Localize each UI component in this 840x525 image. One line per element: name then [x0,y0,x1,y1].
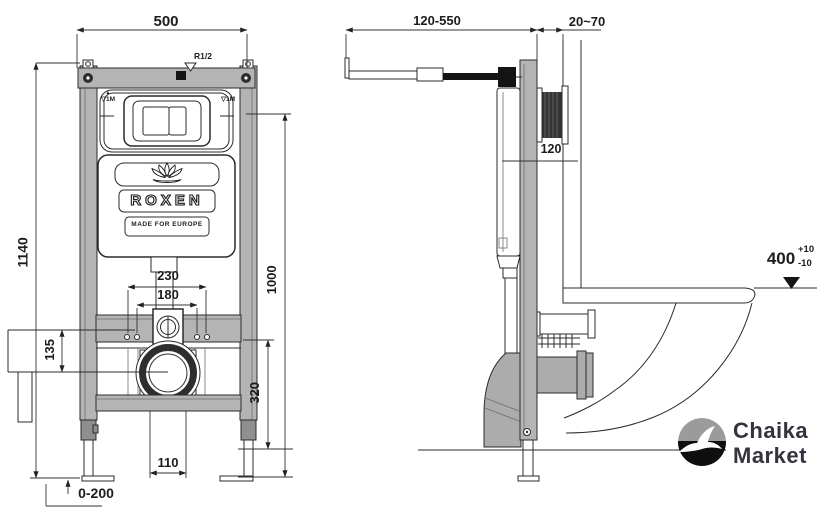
dim-outlet-offset: 110 [146,456,190,470]
flush-button-large [143,107,169,135]
label-water-inlet: R1/2 [186,52,220,61]
flush-pipe-side [505,278,517,353]
fixing-studs [538,334,580,348]
level-triangle-mark [783,277,800,289]
frame-left-column [80,66,97,420]
dim-fixing-outer: 230 [148,269,188,283]
side-view-drawing [345,40,817,481]
store-logo [676,418,728,467]
front-view-drawing [8,60,257,481]
installation-drawing: 500 1140 230 180 135 1000 320 110 0-200 … [0,0,840,525]
dim-bowl-height-minus: -10 [798,259,824,269]
wall-arm-plate [18,372,32,422]
adjustable-leg-right [244,440,253,477]
technical-drawing [0,0,840,525]
level-mark-right: ▽1M [217,97,239,104]
wall-anchor-rod [345,58,522,87]
dim-side-bracket: 135 [43,330,57,370]
store-name-line2: Market [733,444,807,467]
frame-top-bar [78,68,255,88]
flush-button-small [169,107,186,135]
adjustable-leg-left [84,440,93,477]
dim-bowl-height: 400 [759,250,803,268]
dim-overall-height: 1140 [16,220,31,284]
water-inlet [176,71,186,80]
brand-name: ROXEN [119,193,215,209]
inlet-connector-pipe [537,314,593,334]
adjustable-leg-side [523,440,533,477]
dim-outlet-height: 320 [248,373,262,413]
dim-overall-width: 500 [136,14,196,30]
foot-plate-side [518,476,539,481]
dim-fixing-inner: 180 [148,288,188,302]
store-name-line1: Chaika [733,419,808,442]
flush-shaft [537,86,568,144]
frame-right-column [240,66,257,420]
dim-depth-adjustment: 120-550 [405,14,469,28]
dim-wall-finish: 20~70 [561,15,613,29]
dim-shaft-length: 120 [535,143,567,156]
dim-leg-adjustment: 0-200 [68,486,124,501]
leg-socket-right [241,420,256,440]
dim-bowl-height-plus: +10 [798,245,824,255]
frame-column-side [520,60,537,440]
foot-plate-left [82,476,114,481]
dim-plate-height: 1000 [265,252,279,308]
frame-bottom-bar [96,395,241,411]
cistern-side [497,88,520,256]
level-mark-left: ▽1M [97,97,119,104]
brand-tagline: MADE FOR EUROPE [125,222,209,229]
